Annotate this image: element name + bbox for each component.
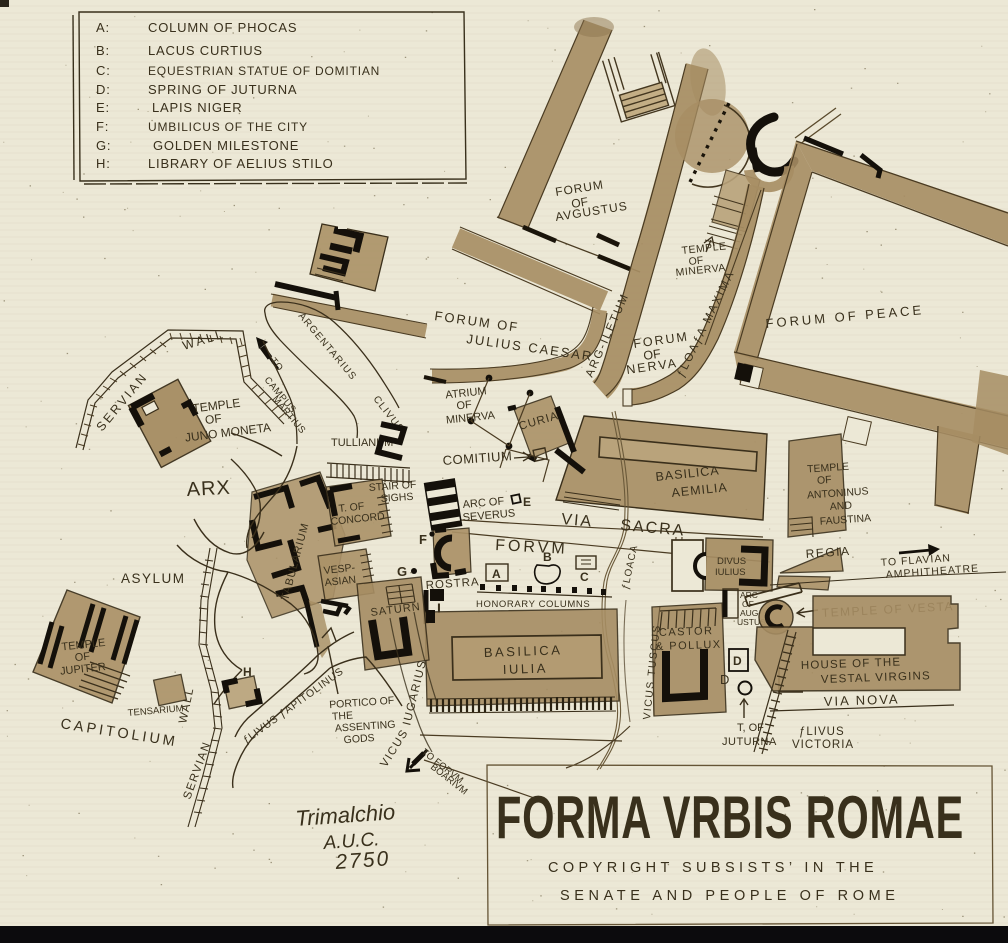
svg-text:FORMA VRBIS ROMAE: FORMA VRBIS ROMAE (496, 784, 964, 851)
svg-text:G: G (397, 564, 407, 579)
svg-text:ASYLUM: ASYLUM (121, 571, 186, 586)
svg-text:C:: C: (96, 63, 111, 78)
svg-text:C: C (580, 570, 589, 584)
svg-text:LIBRARY OF AELIUS STILO: LIBRARY OF AELIUS STILO (148, 156, 334, 171)
svg-text:F: F (419, 532, 427, 547)
svg-text:G:: G: (96, 138, 111, 153)
svg-text:ƒLIVUS: ƒLIVUS (799, 726, 845, 738)
svg-text:E:: E: (96, 100, 110, 115)
svg-text:BASILICA: BASILICA (484, 642, 563, 660)
svg-text:HONORARY COLUMNS: HONORARY COLUMNS (476, 599, 590, 610)
svg-text:OF: OF (817, 474, 832, 487)
svg-text:VIA NOVA: VIA NOVA (824, 691, 900, 709)
svg-text:B:: B: (96, 43, 110, 58)
svg-text:COPYRIGHT SUBSISTS’ IN THE: COPYRIGHT SUBSISTS’ IN THE (548, 860, 878, 876)
svg-text:IULIUS: IULIUS (715, 567, 746, 578)
svg-text:E: E (523, 495, 531, 509)
svg-text:H:: H: (96, 156, 111, 171)
svg-text:OF: OF (204, 411, 222, 427)
svg-text:A:: A: (96, 20, 110, 35)
svg-text:CASTOR: CASTOR (659, 625, 714, 639)
svg-text:IULIA: IULIA (503, 660, 549, 677)
svg-text:AND: AND (829, 499, 852, 513)
svg-text:H: H (243, 665, 252, 679)
svg-text:EQUESTRIAN STATUE OF DOMITIAN: EQUESTRIAN STATUE OF DOMITIAN (148, 64, 380, 78)
svg-text:D: D (720, 672, 729, 687)
svg-text:D:: D: (96, 82, 111, 97)
svg-text:DIVUS: DIVUS (717, 556, 746, 567)
svg-text:GOLDEN MILESTONE: GOLDEN MILESTONE (153, 138, 299, 153)
svg-text:SPRING OF JUTURNA: SPRING OF JUTURNA (148, 82, 297, 97)
svg-text:SIGHS: SIGHS (380, 491, 413, 505)
svg-text:SENATE AND PEOPLE OF ROME: SENATE AND PEOPLE OF ROME (560, 888, 900, 904)
svg-text:COLUMN OF PHOCAS: COLUMN OF PHOCAS (148, 20, 297, 35)
svg-text:LACUS CURTIUS: LACUS CURTIUS (148, 43, 263, 58)
svg-text:VICTORIA: VICTORIA (792, 739, 854, 751)
svg-text:D: D (733, 654, 742, 668)
svg-text:2750: 2750 (334, 847, 391, 874)
svg-text:A: A (492, 567, 501, 581)
svg-text:OF: OF (456, 399, 473, 413)
svg-text:VIA: VIA (561, 511, 594, 531)
svg-text:& POLLUX: & POLLUX (656, 639, 722, 653)
svg-text:UMBILICUS OF THE CITY: UMBILICUS OF THE CITY (148, 120, 308, 134)
svg-text:GODS: GODS (343, 732, 375, 746)
svg-text:ARX: ARX (186, 477, 231, 501)
svg-text:LAPIS NIGER: LAPIS NIGER (152, 100, 242, 115)
svg-text:F:: F: (96, 119, 109, 134)
